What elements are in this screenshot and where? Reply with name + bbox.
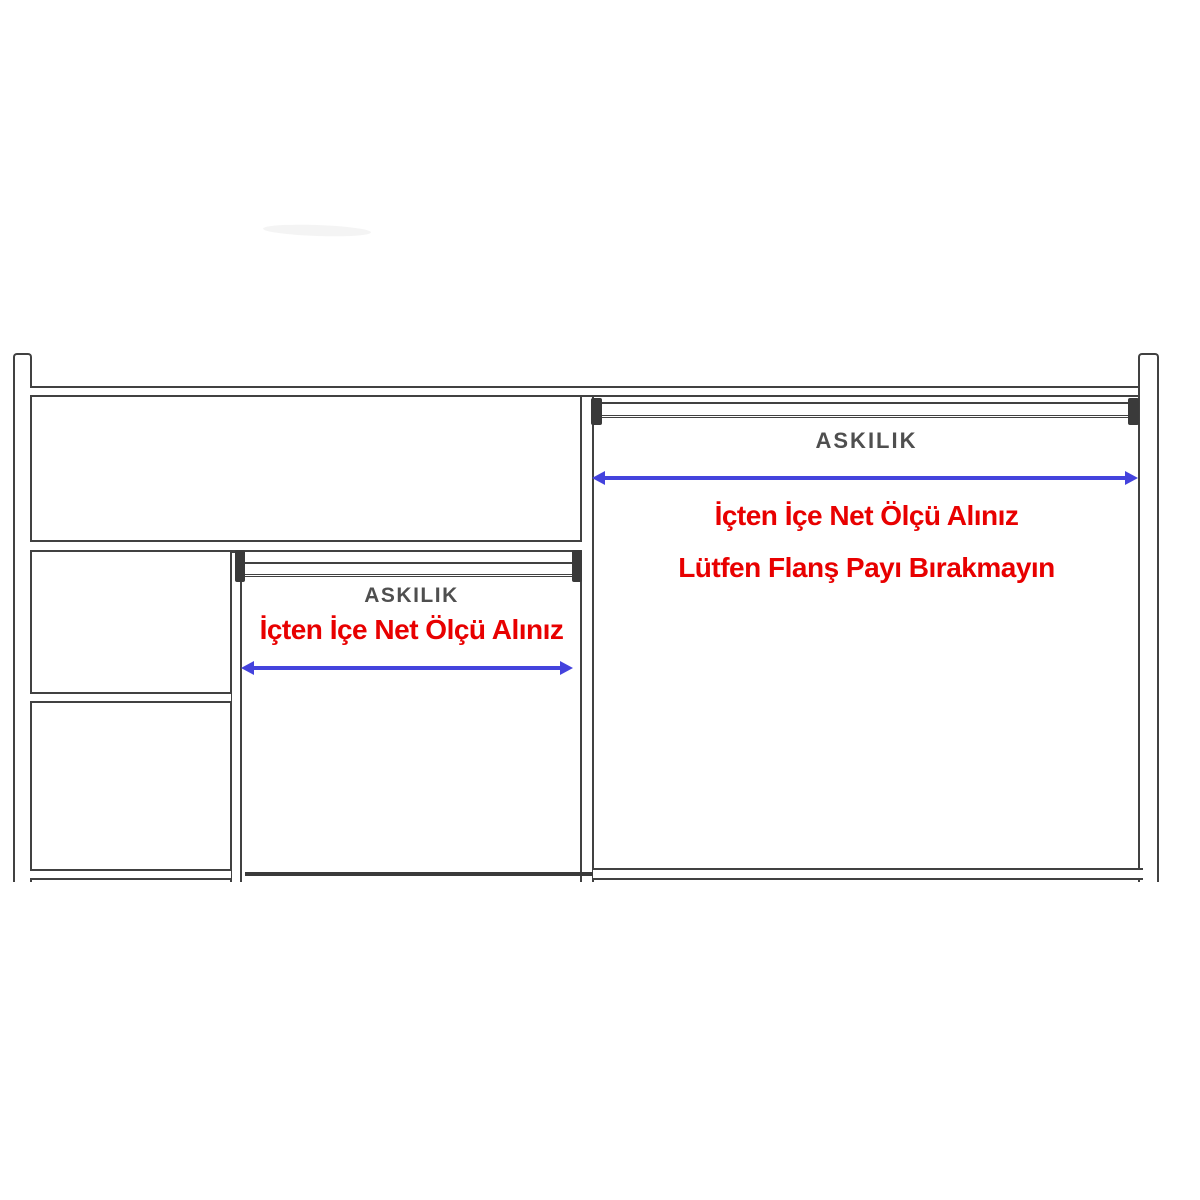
- middle-top-shelf: [30, 540, 582, 552]
- right-rail-right-bracket-icon: [1128, 398, 1139, 425]
- right-hanging-rail: [600, 402, 1132, 418]
- left-side-panel: [13, 353, 32, 882]
- middle-rail-right-bracket-icon: [572, 550, 582, 582]
- right-measure-note-line2: Lütfen Flanş Payı Bırakmayın: [595, 552, 1138, 584]
- arrow-line: [601, 476, 1129, 480]
- right-rail-left-bracket-icon: [591, 398, 602, 425]
- middle-hanging-rail: [243, 562, 579, 577]
- middle-rail-label: ASKILIK: [243, 584, 580, 608]
- right-measure-note-line1: İçten İçe Net Ölçü Alınız: [595, 500, 1138, 532]
- middle-compartment-bottom-line: [245, 872, 593, 876]
- middle-measure-arrow: [241, 660, 573, 676]
- arrow-line: [250, 666, 564, 670]
- wardrobe-drawing: ASKILIK İçten İçe Net Ölçü Alınız ASKILI…: [0, 0, 1200, 1200]
- right-compartment-bottom-shelf: [593, 868, 1143, 880]
- scan-smudge-artifact: [263, 223, 371, 238]
- right-side-panel: [1138, 353, 1159, 882]
- arrowhead-right-icon: [1125, 471, 1138, 485]
- left-column-shelf-bottom: [30, 869, 231, 880]
- middle-rail-left-bracket-icon: [235, 550, 245, 582]
- right-measure-arrow: [592, 470, 1138, 486]
- middle-measure-note: İçten İçe Net Ölçü Alınız: [240, 614, 583, 646]
- middle-divider-panel: [230, 551, 242, 882]
- arrowhead-right-icon: [560, 661, 573, 675]
- right-rail-label: ASKILIK: [595, 428, 1138, 454]
- left-column-shelf-middle: [30, 692, 231, 703]
